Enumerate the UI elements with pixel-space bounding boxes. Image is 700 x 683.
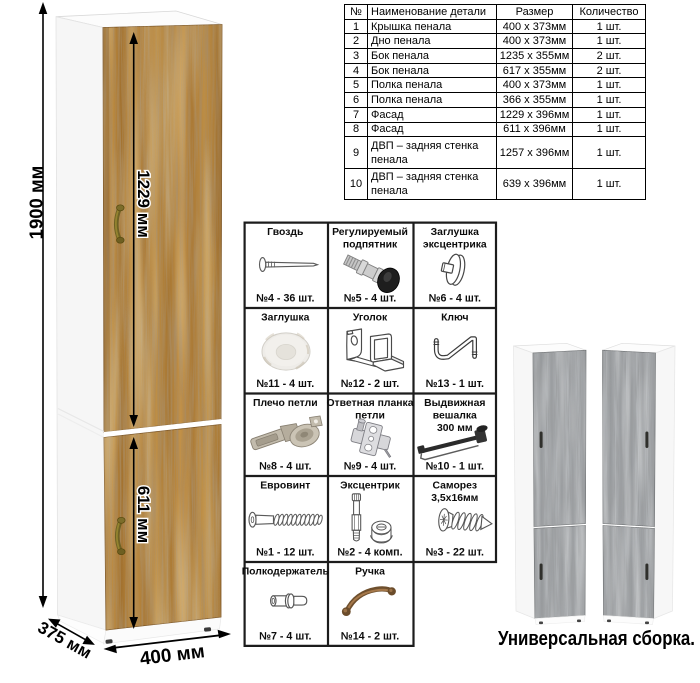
svg-text:3,5х16мм: 3,5х16мм — [431, 493, 478, 504]
svg-text:Универсальная сборка.: Универсальная сборка. — [498, 628, 695, 650]
svg-text:№9 - 4 шт.: №9 - 4 шт. — [344, 461, 396, 473]
svg-text:№10 - 1 шт.: №10 - 1 шт. — [426, 461, 484, 473]
svg-text:№12 - 2 шт.: №12 - 2 шт. — [341, 378, 399, 390]
svg-text:Эксцентрик: Эксцентрик — [340, 481, 401, 492]
svg-text:Уголок: Уголок — [353, 313, 388, 324]
svg-text:эксцентрика: эксцентрика — [423, 240, 487, 251]
svg-text:№14 - 2 шт.: №14 - 2 шт. — [341, 631, 399, 643]
svg-text:№11 - 4 шт.: №11 - 4 шт. — [256, 378, 314, 390]
svg-text:Полкодержатель: Полкодержатель — [242, 567, 329, 578]
svg-text:Ответная планка: Ответная планка — [326, 398, 413, 409]
svg-text:вешалка: вешалка — [433, 411, 477, 422]
svg-text:Гвоздь: Гвоздь — [267, 227, 303, 238]
svg-text:Заглушка: Заглушка — [431, 227, 479, 238]
svg-text:№2 - 4 комп.: №2 - 4 комп. — [337, 547, 402, 559]
svg-text:Заглушка: Заглушка — [261, 313, 309, 324]
svg-text:№5 - 4 шт.: №5 - 4 шт. — [344, 293, 396, 305]
svg-text:№8 - 4 шт.: №8 - 4 шт. — [259, 461, 311, 473]
svg-text:№13 - 1 шт.: №13 - 1 шт. — [426, 378, 484, 390]
svg-text:Регулируемый: Регулируемый — [332, 227, 408, 238]
svg-text:№6 - 4 шт.: №6 - 4 шт. — [429, 293, 481, 305]
svg-text:Ключ: Ключ — [441, 313, 468, 324]
svg-text:подпятник: подпятник — [343, 240, 398, 251]
svg-text:Выдвижная: Выдвижная — [424, 398, 485, 409]
svg-text:Евровинт: Евровинт — [260, 481, 310, 492]
svg-text:Ручка: Ручка — [355, 567, 385, 578]
svg-text:№7 - 4 шт.: №7 - 4 шт. — [259, 631, 311, 643]
svg-text:Саморез: Саморез — [432, 481, 477, 492]
svg-text:№4 - 36 шт.: №4 - 36 шт. — [256, 293, 314, 305]
svg-text:№1 - 12 шт.: №1 - 12 шт. — [256, 547, 314, 559]
svg-text:Плечо петли: Плечо петли — [253, 398, 318, 409]
svg-text:300 мм: 300 мм — [437, 423, 473, 434]
svg-text:№3 - 22 шт.: №3 - 22 шт. — [426, 547, 484, 559]
